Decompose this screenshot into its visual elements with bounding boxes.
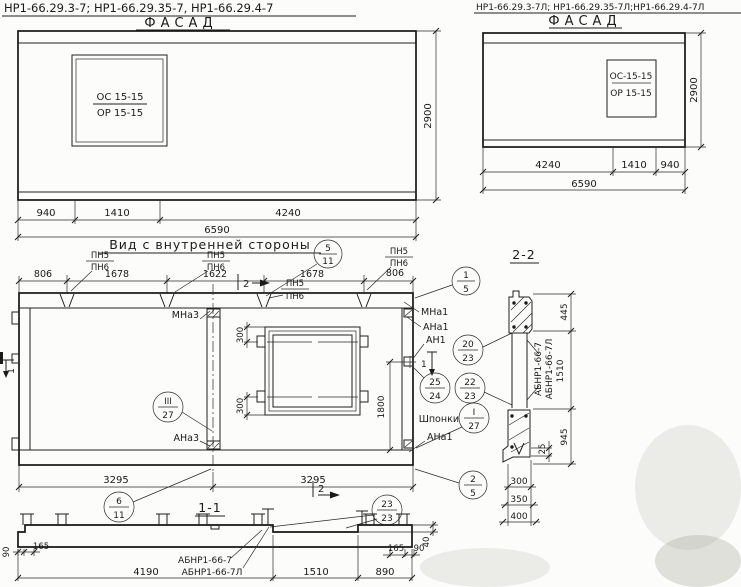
dim-25: 25 (538, 444, 548, 455)
window-mark-top: ОС-15-15 (610, 72, 653, 82)
pn5-label: ПН5 (91, 251, 109, 261)
callout-bottom: 5 (470, 489, 476, 499)
panel-code-right: НР1-66.29.3-7Л; НР1-66.29.35-7Л;НР1-66.2… (476, 3, 704, 13)
callout-bottom: 27 (468, 422, 479, 432)
dim-300-top-lines (244, 322, 265, 348)
arrow-head (429, 369, 435, 376)
leader-line (133, 469, 211, 502)
section-marker-2-top: 2 (238, 274, 270, 290)
pn5-label: ПН5 (286, 279, 304, 289)
dim-1410: 1410 (621, 160, 646, 171)
dim-945: 945 (560, 428, 570, 445)
dim-940: 940 (36, 208, 55, 219)
dim-6590: 6590 (571, 179, 596, 190)
section-2-2: 2-2 АБНР1-66-7 АБНР1-66-7Л 1510 445 945 … (499, 247, 576, 526)
callout-bottom: 23 (381, 514, 392, 524)
section-marker-1-right: 1 (421, 352, 437, 376)
panel-code-left: НР1-66.29.3-7; НР1-66.29.35-7, НР1-66.29… (4, 1, 273, 15)
leader-line (200, 311, 210, 319)
dim-940: 940 (660, 160, 679, 171)
facade-left: НР1-66.29.3-7; НР1-66.29.35-7, НР1-66.29… (2, 1, 441, 241)
leader-line (484, 392, 512, 405)
callout-top: 25 (429, 378, 440, 388)
dim-90: 90 (2, 547, 12, 558)
rebar-dot (512, 301, 515, 304)
leader-line (175, 271, 208, 292)
callout-top: 5 (325, 244, 331, 254)
mullion-anchors (207, 309, 220, 449)
inner-view-title: Вид с внутренней стороны (109, 237, 311, 252)
callout-bottom: 24 (429, 392, 441, 402)
callout-III-27: III 27 (153, 392, 212, 431)
inner-view: Вид с внутренней стороны 5 11 806 1678 1… (0, 237, 512, 528)
drawing-canvas: НР1-66.29.3-7; НР1-66.29.35-7, НР1-66.29… (0, 0, 741, 587)
leader-line (415, 285, 452, 298)
dim-806: 806 (34, 269, 52, 280)
bottom-block (503, 410, 530, 462)
callout-2-5: 2 5 (415, 469, 487, 499)
blueprint-sheet: НР1-66.29.3-7; НР1-66.29.35-7, НР1-66.29… (0, 0, 741, 587)
dim-300: 300 (236, 398, 246, 414)
cut-label: 2 (243, 279, 249, 290)
callout-top: 6 (116, 497, 122, 507)
dim-40-lines (358, 521, 438, 536)
height-dim: 2900 (423, 103, 434, 128)
callout-top: III (164, 397, 172, 407)
cut-label: 1 (7, 368, 17, 374)
pn6-label: ПН6 (390, 259, 408, 269)
callout-bottom: 5 (463, 285, 469, 295)
rebar-dot (524, 325, 527, 328)
label-abnr-l: АБНР1-66-7Л (545, 339, 555, 400)
anchor-hook (514, 443, 524, 454)
dim-3295: 3295 (103, 475, 128, 486)
leader-line (415, 469, 459, 483)
dim-350: 350 (510, 495, 527, 505)
dim-300: 300 (236, 327, 246, 343)
label-mna1: МНа1 (421, 307, 448, 318)
window-mark-top: ОС 15-15 (96, 92, 143, 103)
dim-165: 165 (33, 542, 49, 552)
dim-6590: 6590 (204, 225, 229, 236)
scan-mark (0, 352, 3, 364)
label-an1: АН1 (426, 335, 446, 346)
label-abnr: АБНР1-66-7 (178, 556, 232, 566)
callout-top: 1 (463, 271, 469, 281)
callout-bottom: 23 (464, 392, 475, 402)
section-2-2-title: 2-2 (512, 247, 535, 262)
panel-outline (483, 33, 685, 147)
bottom-dim-lines (19, 465, 413, 492)
leader-line (407, 317, 421, 327)
leader-line (409, 441, 425, 452)
callout-bottom: 27 (162, 411, 173, 421)
panel-bands (19, 308, 413, 450)
dim-165: 165 (388, 544, 404, 554)
pn5-label: ПН5 (207, 251, 225, 261)
callout-bottom: 11 (322, 257, 333, 267)
callout-22-23: 22 23 (455, 373, 512, 405)
section-1-1: 90 165 165 90 40 4190 1510 890 АБНР1-66-… (2, 509, 438, 581)
tee-anchors (211, 509, 368, 529)
facade-right: НР1-66.29.3-7Л; НР1-66.29.35-7Л;НР1-66.2… (474, 3, 741, 194)
section-1-1-title: 1-1 (198, 500, 221, 515)
pn6-label: ПН6 (207, 263, 225, 273)
height-dim: 2900 (689, 77, 700, 102)
leader-line (200, 441, 210, 446)
leader-line (483, 333, 512, 347)
dim-1410: 1410 (104, 208, 129, 219)
callout-top: 2 (470, 475, 476, 485)
panel-bands (18, 43, 416, 192)
dim-1510: 1510 (303, 567, 328, 578)
rebar-dot (510, 414, 513, 417)
facade-title-right: ФАСАД (548, 14, 621, 29)
callout-20-23: 20 23 (453, 333, 512, 365)
callout-top: 20 (462, 340, 474, 350)
anchor-marks (60, 294, 371, 307)
panel-outline (19, 293, 413, 465)
rebar-dot (510, 445, 513, 448)
panel-bands (483, 43, 685, 140)
dim-4240: 4240 (275, 208, 300, 219)
edge-tabs (12, 309, 413, 450)
facade-title-left: ФАСАД (144, 16, 217, 31)
dim-40: 40 (422, 537, 432, 548)
rebar-dot (512, 325, 515, 328)
panel-outline (18, 31, 416, 200)
dim-1800-lines (386, 356, 416, 450)
label-shponki: Шпонки (419, 414, 459, 425)
rebar-dot (524, 414, 527, 417)
callout-top: 22 (464, 378, 475, 388)
label-abnr: АБНР1-66-7 (534, 342, 544, 396)
pn6-label: ПН6 (91, 263, 109, 273)
callout-23-23: 23 23 (270, 495, 402, 528)
dim-1800: 1800 (377, 395, 387, 418)
window-mark-bottom: ОР 15-15 (610, 89, 652, 99)
beam-outline (18, 525, 412, 547)
window-mark-bottom: ОР 15-15 (97, 108, 143, 119)
cut-label: 2 (318, 484, 324, 495)
window-opening (257, 327, 368, 415)
pn-stack-4: ПН5 ПН6 (367, 247, 413, 290)
label-ana3: АНа3 (173, 433, 199, 444)
label-ana1: АНа1 (423, 322, 449, 333)
label-mna3: МНа3 (172, 310, 199, 321)
callout-1-5: 1 5 (415, 267, 480, 298)
cut-label: 1 (421, 360, 427, 370)
dim-4190: 4190 (133, 567, 158, 578)
dim-400: 400 (510, 512, 527, 522)
arrow-head (330, 492, 340, 499)
dim-445: 445 (560, 303, 570, 320)
label-abnr-l: АБНР1-66-7Л (182, 568, 243, 578)
rebar-dot (524, 301, 527, 304)
leader-line (269, 295, 283, 298)
section-marker-2-bottom: 2 (313, 481, 340, 499)
callout-top: 23 (381, 500, 392, 510)
dim-300: 300 (510, 477, 527, 487)
leader-line (270, 515, 377, 528)
dim-4240: 4240 (535, 160, 560, 171)
pn-stack-1: ПН5 ПН6 (71, 251, 114, 291)
callout-top: I (473, 408, 476, 418)
dim-1510: 1510 (556, 359, 566, 382)
pn5-label: ПН5 (390, 247, 408, 257)
leader-line (416, 427, 462, 448)
web-lines (512, 333, 527, 408)
dim-890: 890 (375, 567, 394, 578)
callout-bottom: 11 (113, 511, 124, 521)
callout-bottom: 23 (462, 354, 473, 364)
